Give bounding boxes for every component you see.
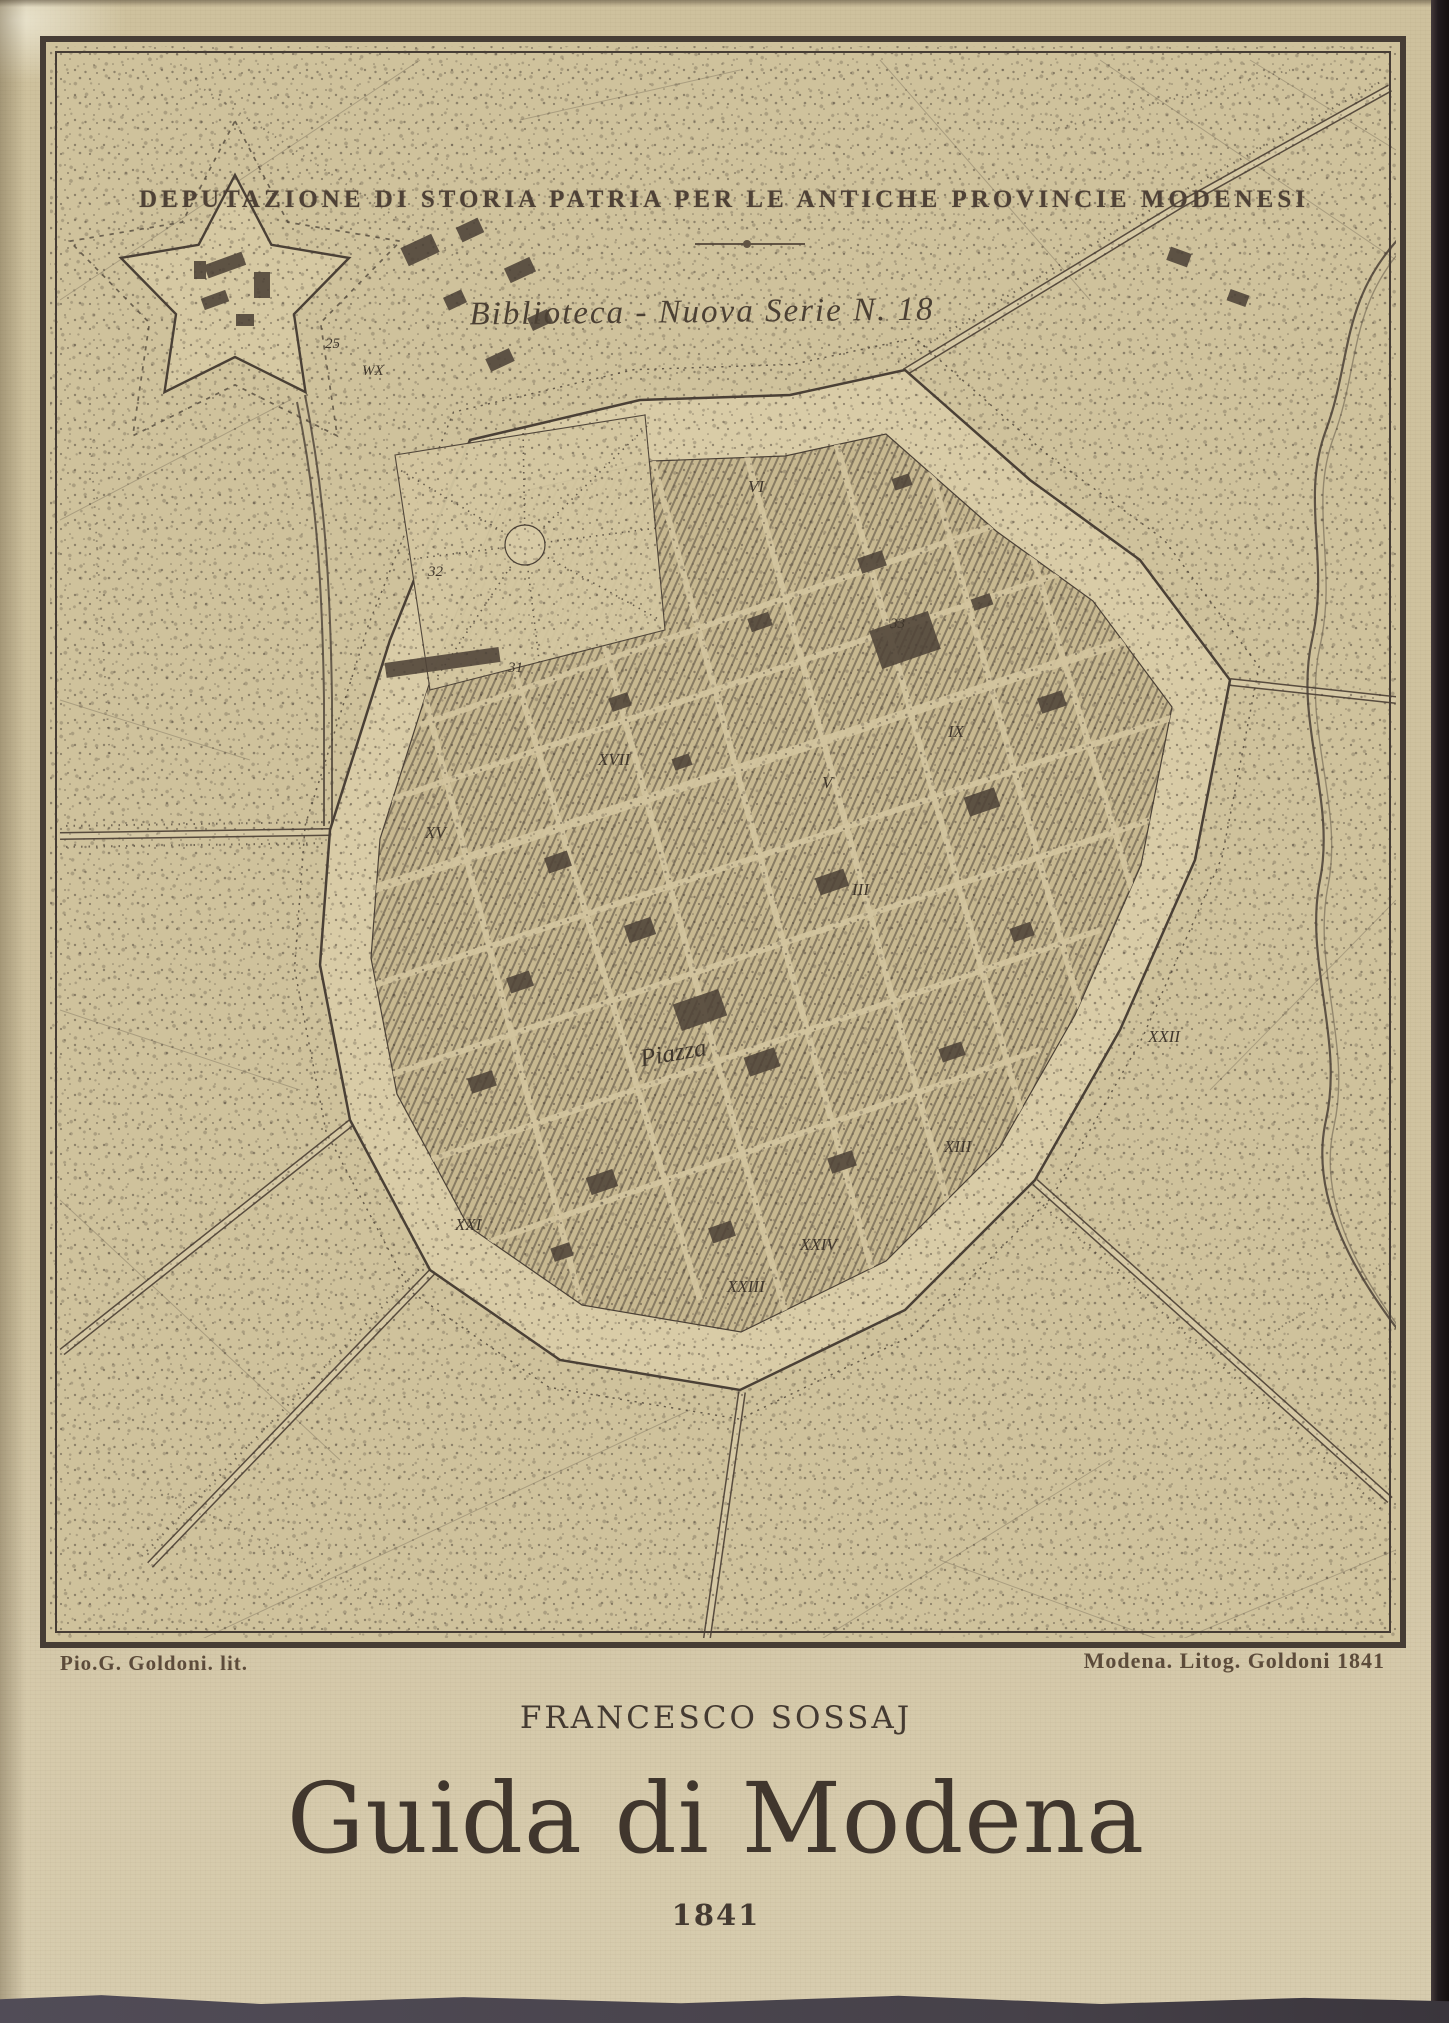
gate-numeral: XXIII bbox=[726, 1277, 766, 1296]
lithographer-credit-right: Modena. Litog. Goldoni 1841 bbox=[955, 1648, 1385, 1674]
author-name: FRANCESCO SOSSAJ bbox=[0, 1700, 1432, 1736]
gate-numeral: XIII bbox=[943, 1137, 973, 1156]
lithographer-credit-left: Pio.G. Goldoni. lit. bbox=[60, 1651, 248, 1676]
institution-header: DEPUTAZIONE DI STORIA PATRIA PER LE ANTI… bbox=[52, 186, 1396, 214]
header-rule-ornament bbox=[695, 243, 805, 245]
gate-numeral: III bbox=[851, 880, 870, 899]
publication-year: 1841 bbox=[0, 1898, 1432, 1932]
right-dark-edge bbox=[1431, 0, 1449, 2023]
stipple-texture-2 bbox=[50, 46, 1396, 1638]
gate-numeral: IX bbox=[947, 722, 965, 741]
site-number: 32 bbox=[427, 564, 444, 580]
top-edge-shading bbox=[0, 0, 1449, 7]
gate-numeral: VI bbox=[748, 477, 765, 496]
book-title: Guida di Modena bbox=[0, 1762, 1432, 1875]
book-cover: Piazza VI IX XVII XV V III XXII XIII XXI… bbox=[0, 0, 1449, 2023]
site-number: 25 bbox=[325, 336, 341, 352]
gate-numeral: XV bbox=[424, 823, 448, 842]
spine-shading bbox=[0, 0, 26, 2023]
gate-numeral: XXII bbox=[1147, 1027, 1181, 1046]
gate-numeral: XXI bbox=[454, 1215, 483, 1234]
gate-numeral: XVII bbox=[597, 750, 631, 769]
site-number: 33 bbox=[889, 616, 905, 632]
site-number: 31 bbox=[507, 660, 523, 676]
gate-numeral: XXIV bbox=[799, 1235, 839, 1254]
site-number: WX bbox=[362, 363, 384, 379]
